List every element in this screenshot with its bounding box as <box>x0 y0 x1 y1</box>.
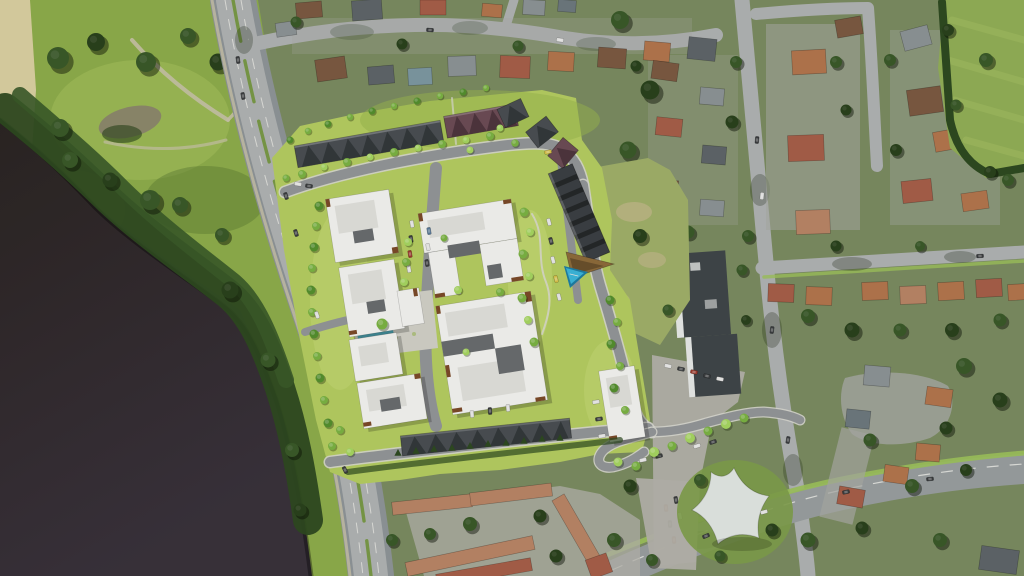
aerial-view <box>0 0 1024 576</box>
aerial-screenshot <box>0 0 1024 576</box>
photo-tint <box>0 0 1024 576</box>
